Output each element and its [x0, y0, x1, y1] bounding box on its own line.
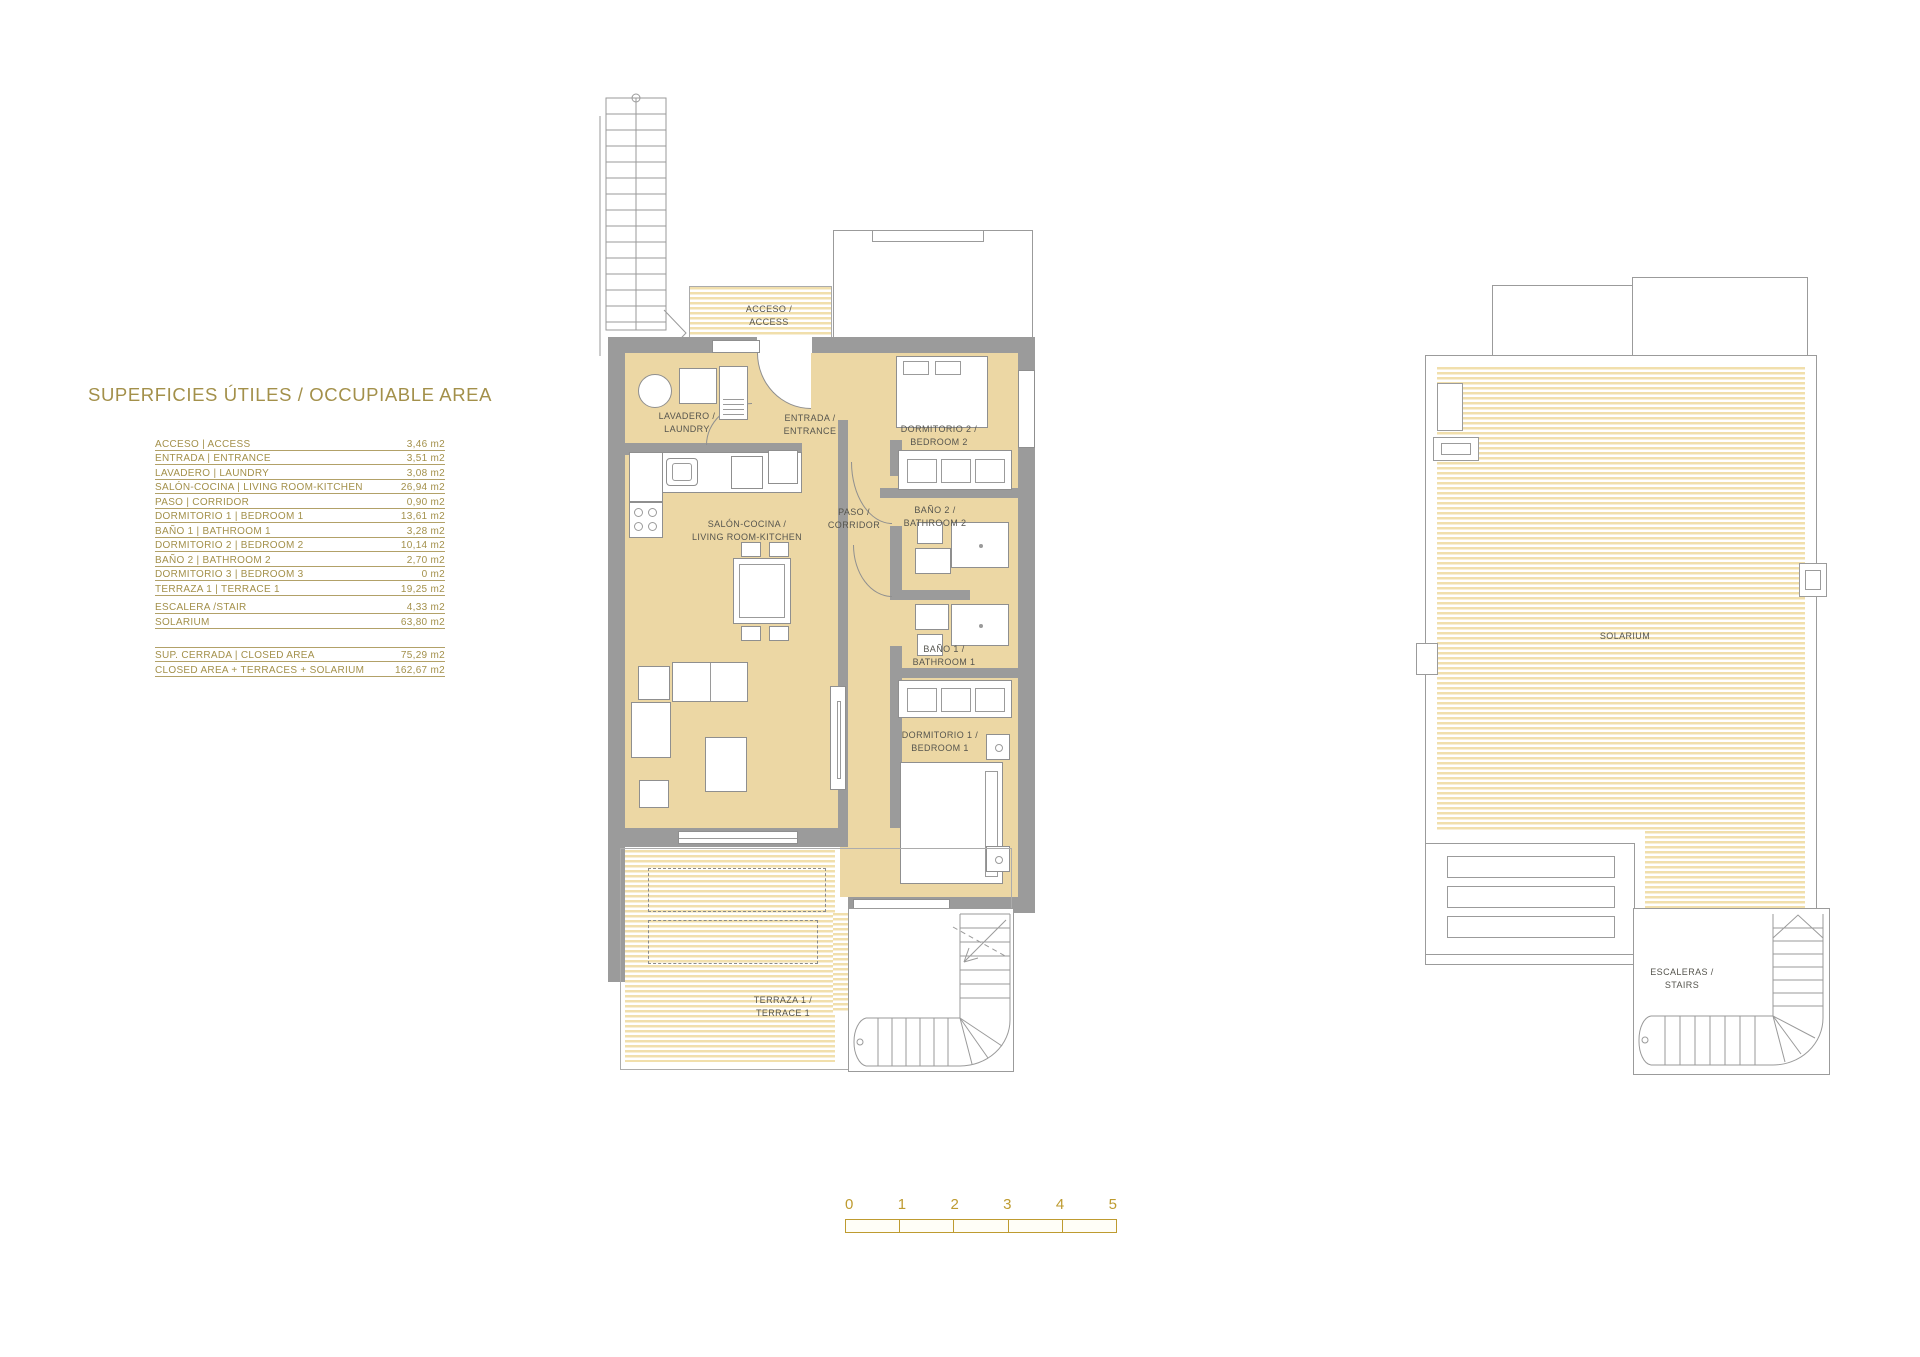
- room-label-line: ACCESS: [749, 317, 788, 327]
- area-label: ESCALERA /STAIR: [155, 602, 247, 613]
- area-value: 3,28 m2: [407, 526, 445, 537]
- window-opening: [678, 831, 798, 844]
- room-label-line: BAÑO 1 /: [923, 644, 964, 654]
- table-row: BAÑO 1 | BATHROOM 13,28 m2: [155, 523, 445, 538]
- room-label-line: LIVING ROOM-KITCHEN: [692, 532, 802, 542]
- tv-screen: [837, 701, 841, 779]
- solarium-hatch: [1645, 831, 1805, 911]
- area-value: 13,61 m2: [401, 511, 445, 522]
- dining-table: [733, 558, 791, 624]
- area-label: BAÑO 2 | BATHROOM 2: [155, 555, 271, 566]
- room-label-bano1: BAÑO 1 / BATHROOM 1: [894, 643, 994, 669]
- room-label-acceso: ACCESO / ACCESS: [719, 303, 819, 329]
- window-mullion: [679, 838, 797, 839]
- area-label: TERRAZA 1 | TERRACE 1: [155, 584, 280, 595]
- window-opening: [712, 340, 760, 353]
- louver-slat: [1447, 886, 1615, 908]
- room-label-line: ENTRADA /: [784, 413, 835, 423]
- area-value: 2,70 m2: [407, 555, 445, 566]
- room-label-line: SOLARIUM: [1600, 631, 1650, 641]
- area-label: BAÑO 1 | BATHROOM 1: [155, 526, 271, 537]
- scale-tick: 3: [1003, 1196, 1011, 1216]
- bathroom-sink: [915, 548, 951, 574]
- room-label-line: CORRIDOR: [828, 520, 880, 530]
- page-title: SUPERFICIES ÚTILES / OCCUPIABLE AREA: [88, 384, 492, 406]
- scale-tick: 1: [898, 1196, 906, 1216]
- shower: [951, 604, 1009, 646]
- room-label-entrada: ENTRADA / ENTRANCE: [760, 412, 860, 438]
- wardrobe: [898, 450, 1012, 490]
- table-row: SUP. CERRADA | CLOSED AREA75,29 m2: [155, 648, 445, 663]
- room-label-line: BEDROOM 2: [910, 437, 968, 447]
- scale-tick: 2: [950, 1196, 958, 1216]
- room-label-line: ESCALERAS /: [1650, 967, 1713, 977]
- room-label-line: TERRACE 1: [756, 1008, 810, 1018]
- area-label: DORMITORIO 2 | BEDROOM 2: [155, 540, 304, 551]
- scale-segment: [1063, 1220, 1116, 1232]
- chair: [769, 626, 789, 641]
- room-label-paso: PASO / CORRIDOR: [814, 506, 894, 532]
- table-row: PASO | CORRIDOR0,90 m2: [155, 494, 445, 509]
- chair: [769, 542, 789, 557]
- armchair: [638, 666, 670, 700]
- room-label-line: BAÑO 2 /: [914, 505, 955, 515]
- room-label-line: STAIRS: [1665, 980, 1699, 990]
- rooftop-fixture: [1433, 437, 1479, 461]
- wardrobe: [898, 680, 1012, 718]
- wardrobe-door: [975, 459, 1005, 483]
- wardrobe-door: [941, 459, 971, 483]
- area-label: SOLARIUM: [155, 617, 210, 628]
- pillow: [935, 361, 961, 375]
- rooftop-fixture: [1799, 563, 1827, 597]
- laundry-counter: [679, 368, 717, 404]
- wardrobe-door: [975, 688, 1005, 712]
- solarium-roof-box: [1632, 277, 1808, 357]
- coffee-table: [705, 737, 747, 792]
- door-opening: [757, 337, 812, 353]
- fixture-inner: [1441, 443, 1471, 455]
- oven: [731, 456, 763, 489]
- room-label-line: ENTRANCE: [784, 426, 837, 436]
- area-value: 63,80 m2: [401, 617, 445, 628]
- scale-segment: [1009, 1220, 1063, 1232]
- tv-unit: [830, 686, 846, 790]
- wardrobe-door: [907, 459, 937, 483]
- area-label: ACCESO | ACCESS: [155, 439, 250, 450]
- room-label-line: LAVADERO /: [659, 411, 716, 421]
- side-table: [639, 780, 669, 808]
- area-value: 4,33 m2: [407, 602, 445, 613]
- room-label-bano2: BAÑO 2 / BATHROOM 2: [885, 504, 985, 530]
- area-label: ENTRADA | ENTRANCE: [155, 453, 271, 464]
- bed: [896, 356, 988, 428]
- table-row: ENTRADA | ENTRANCE3,51 m2: [155, 451, 445, 466]
- area-label: PASO | CORRIDOR: [155, 497, 249, 508]
- room-label-line: DORMITORIO 2 /: [901, 424, 977, 434]
- area-label: DORMITORIO 3 | BEDROOM 3: [155, 569, 304, 580]
- area-label: LAVADERO | LAUNDRY: [155, 468, 269, 479]
- kitchen-cabinet: [768, 450, 798, 484]
- louver-slat: [1447, 856, 1615, 878]
- bathroom-sink: [915, 604, 949, 630]
- scale-bar: 012345: [845, 1196, 1117, 1233]
- room-label-line: ACCESO /: [746, 304, 792, 314]
- wardrobe-door: [907, 688, 937, 712]
- room-label-line: BEDROOM 1: [911, 743, 969, 753]
- table-row: DORMITORIO 1 | BEDROOM 113,61 m2: [155, 509, 445, 524]
- area-label: SALÓN-COCINA | LIVING ROOM-KITCHEN: [155, 482, 363, 493]
- scale-segment: [846, 1220, 900, 1232]
- area-value: 3,51 m2: [407, 453, 445, 464]
- scale-tick-row: 012345: [845, 1196, 1117, 1216]
- laundry-basin: [638, 374, 672, 408]
- room-label-line: BATHROOM 1: [913, 657, 976, 667]
- kitchen-sink: [666, 458, 698, 486]
- table-row: TERRAZA 1 | TERRACE 119,25 m2: [155, 581, 445, 596]
- burner: [648, 522, 657, 531]
- scale-tick: 4: [1056, 1196, 1064, 1216]
- area-value: 3,46 m2: [407, 439, 445, 450]
- room-label-line: BATHROOM 2: [904, 518, 967, 528]
- room-label-dormitorio1: DORMITORIO 1 / BEDROOM 1: [880, 729, 1000, 755]
- table-row: BAÑO 2 | BATHROOM 22,70 m2: [155, 552, 445, 567]
- sofa: [631, 702, 671, 758]
- drain: [979, 624, 983, 628]
- area-table: ACCESO | ACCESS3,46 m2ENTRADA | ENTRANCE…: [155, 436, 445, 677]
- wall-segment: [890, 668, 1018, 678]
- area-value: 162,67 m2: [395, 665, 445, 676]
- table-row: LAVADERO | LAUNDRY3,08 m2: [155, 465, 445, 480]
- table-row: ACCESO | ACCESS3,46 m2: [155, 436, 445, 451]
- scale-bar-ruler: [845, 1219, 1117, 1233]
- area-value: 0,90 m2: [407, 497, 445, 508]
- terrace-staircase-drawing: [848, 908, 1014, 1072]
- room-label-solarium: SOLARIUM: [1555, 630, 1695, 643]
- area-value: 3,08 m2: [407, 468, 445, 479]
- scale-segment: [954, 1220, 1008, 1232]
- wardrobe-door: [941, 688, 971, 712]
- fixture-inner: [1805, 570, 1821, 590]
- area-label: SUP. CERRADA | CLOSED AREA: [155, 650, 315, 661]
- table-row: ESCALERA /STAIR4,33 m2: [155, 600, 445, 615]
- wall-segment: [608, 337, 1035, 353]
- sink-bowl: [672, 463, 692, 481]
- room-label-salon: SALÓN-COCINA / LIVING ROOM-KITCHEN: [672, 518, 822, 544]
- burner: [648, 508, 657, 517]
- area-label: DORMITORIO 1 | BEDROOM 1: [155, 511, 304, 522]
- rooftop-fixture: [1416, 643, 1438, 675]
- area-value: 19,25 m2: [401, 584, 445, 595]
- table-top: [739, 564, 785, 618]
- floor-plan-sheet: { "title": "SUPERFICIES ÚTILES / OCCUPIA…: [0, 0, 1920, 1357]
- solarium-roof-box: [1492, 285, 1633, 357]
- sofa: [672, 662, 748, 702]
- sofa-cushion-line: [710, 663, 711, 701]
- area-value: 75,29 m2: [401, 650, 445, 661]
- room-label-escaleras: ESCALERAS / STAIRS: [1622, 966, 1742, 992]
- roof-outline: [833, 230, 1033, 340]
- room-label-line: DORMITORIO 1 /: [902, 730, 978, 740]
- louver-slat: [1447, 916, 1615, 938]
- rooftop-fixture: [1437, 383, 1463, 431]
- pillow: [903, 361, 929, 375]
- table-row: CLOSED AREA + TERRACES + SOLARIUM162,67 …: [155, 662, 445, 677]
- roof-lintel: [872, 230, 984, 242]
- area-value: 10,14 m2: [401, 540, 445, 551]
- scale-tick: 5: [1109, 1196, 1117, 1216]
- room-label-line: LAUNDRY: [664, 424, 710, 434]
- table-row: SALÓN-COCINA | LIVING ROOM-KITCHEN26,94 …: [155, 480, 445, 495]
- top-staircase-drawing: [598, 88, 690, 360]
- room-label-line: SALÓN-COCINA /: [708, 519, 787, 529]
- chair: [741, 542, 761, 557]
- chair: [741, 626, 761, 641]
- burner: [634, 508, 643, 517]
- room-label-line: TERRAZA 1 /: [754, 995, 812, 1005]
- kitchen-cabinet: [629, 452, 663, 502]
- area-label: CLOSED AREA + TERRACES + SOLARIUM: [155, 665, 364, 676]
- area-value: 0 m2: [422, 569, 445, 580]
- table-row: SOLARIUM63,80 m2: [155, 614, 445, 629]
- room-label-terraza1: TERRAZA 1 / TERRACE 1: [723, 994, 843, 1020]
- room-label-dormitorio2: DORMITORIO 2 / BEDROOM 2: [879, 423, 999, 449]
- drain: [979, 544, 983, 548]
- solarium-hatch: [1437, 367, 1805, 831]
- room-label-line: PASO /: [838, 507, 870, 517]
- table-row: DORMITORIO 2 | BEDROOM 210,14 m2: [155, 538, 445, 553]
- wall-segment: [890, 590, 970, 600]
- room-label-lavadero: LAVADERO / LAUNDRY: [637, 410, 737, 436]
- area-value: 26,94 m2: [401, 482, 445, 493]
- scale-segment: [900, 1220, 954, 1232]
- cooktop: [629, 502, 663, 538]
- table-row: DORMITORIO 3 | BEDROOM 30 m2: [155, 567, 445, 582]
- window-opening: [1018, 370, 1035, 448]
- burner: [634, 522, 643, 531]
- table-row: [155, 638, 445, 648]
- scale-tick: 0: [845, 1196, 853, 1216]
